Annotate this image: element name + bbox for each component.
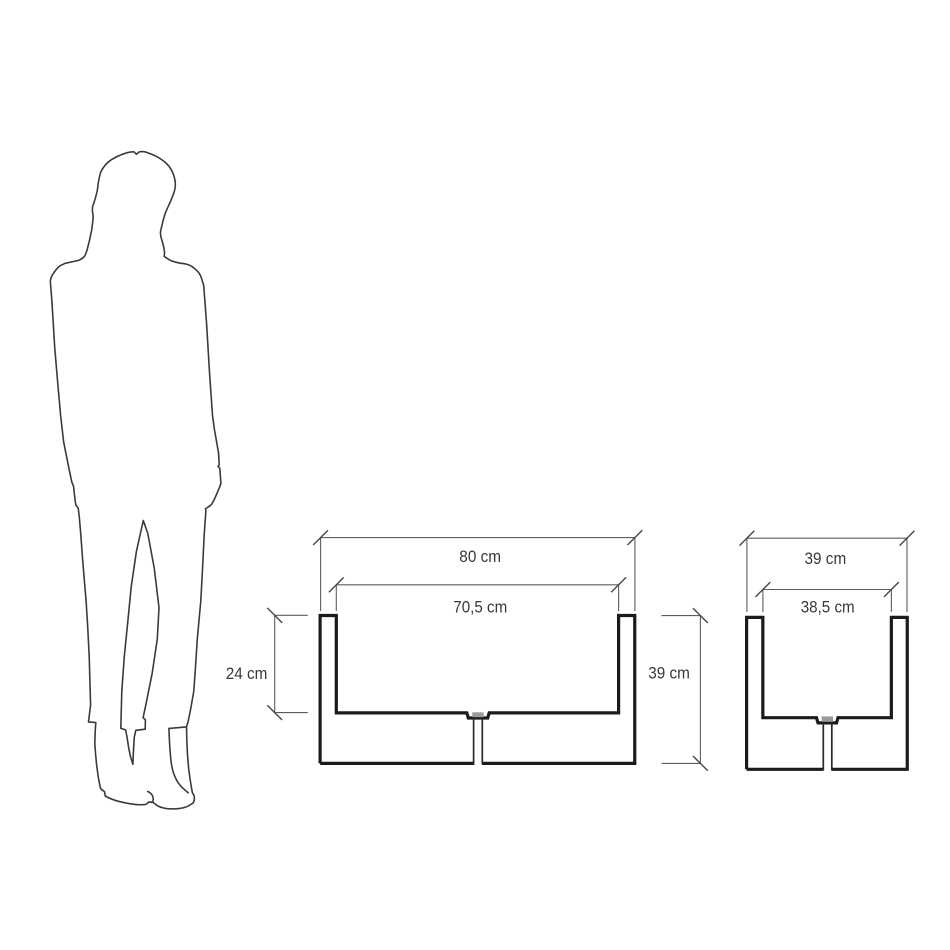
svg-text:39 cm: 39 cm [805,549,847,568]
svg-text:70,5 cm: 70,5 cm [453,598,507,617]
svg-text:24 cm: 24 cm [226,664,268,683]
svg-text:80 cm: 80 cm [459,547,501,566]
svg-text:38,5 cm: 38,5 cm [801,597,855,616]
svg-text:39 cm: 39 cm [648,663,690,682]
